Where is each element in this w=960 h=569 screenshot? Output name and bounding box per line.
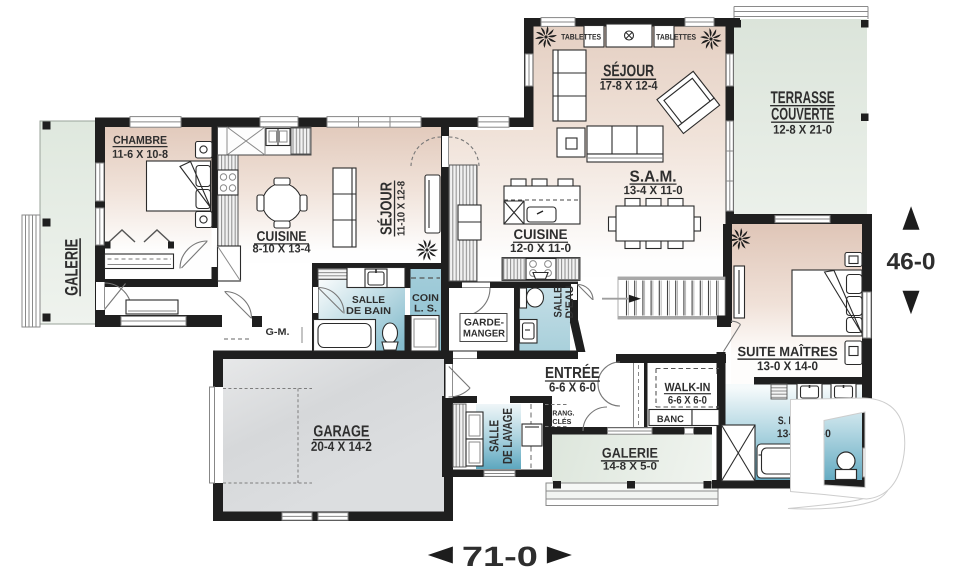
svg-text:SÉJOUR: SÉJOUR — [377, 182, 396, 235]
svg-text:12-0 X 11-0: 12-0 X 11-0 — [510, 241, 571, 255]
svg-text:BANC: BANC — [657, 414, 684, 425]
svg-text:11-6 X 10-8: 11-6 X 10-8 — [112, 149, 169, 161]
svg-text:SÉJOUR: SÉJOUR — [603, 61, 654, 80]
svg-text:71-0: 71-0 — [462, 541, 538, 569]
svg-text:TABLETTES: TABLETTES — [656, 33, 697, 42]
svg-text:MANGER: MANGER — [463, 328, 505, 339]
svg-text:GALERIE: GALERIE — [61, 239, 81, 296]
svg-text:L. S.: L. S. — [414, 303, 437, 314]
svg-text:17-8 X 12-4: 17-8 X 12-4 — [600, 79, 658, 93]
svg-text:13-4 X 11-0: 13-4 X 11-0 — [624, 183, 683, 197]
svg-text:GARAGE: GARAGE — [313, 423, 369, 440]
svg-text:D'EAU: D'EAU — [564, 286, 576, 319]
svg-text:CLÉS: CLÉS — [552, 417, 571, 426]
svg-text:6-6 X 6-0: 6-6 X 6-0 — [668, 395, 707, 407]
svg-text:TABLETTES: TABLETTES — [561, 33, 602, 42]
svg-text:46-0: 46-0 — [887, 248, 936, 274]
svg-text:GARDE-: GARDE- — [464, 317, 504, 328]
svg-text:COIN: COIN — [412, 293, 439, 304]
svg-text:GALERIE: GALERIE — [602, 445, 658, 461]
svg-text:12-8 X 21-0: 12-8 X 21-0 — [773, 123, 832, 137]
svg-text:WALK-IN: WALK-IN — [664, 380, 710, 394]
svg-text:DE LAVAGE: DE LAVAGE — [500, 408, 515, 464]
svg-text:20-4 X 14-2: 20-4 X 14-2 — [311, 439, 372, 454]
svg-text:13-0 X 14-0: 13-0 X 14-0 — [757, 359, 818, 373]
svg-text:COUVERTE: COUVERTE — [771, 105, 834, 124]
svg-text:CUISINE: CUISINE — [514, 226, 568, 242]
svg-text:11-10 X 12-8: 11-10 X 12-8 — [396, 181, 408, 236]
svg-text:SALLE: SALLE — [552, 287, 564, 318]
svg-text:14-8 X 5-0: 14-8 X 5-0 — [603, 461, 657, 473]
svg-text:CUISINE: CUISINE — [257, 228, 307, 244]
svg-text:SALLE: SALLE — [352, 295, 385, 306]
svg-text:DE BAIN: DE BAIN — [346, 306, 391, 317]
svg-text:CHAMBRE: CHAMBRE — [113, 135, 167, 147]
svg-text:6-6 X 6-0: 6-6 X 6-0 — [549, 380, 596, 395]
svg-text:G-M.: G-M. — [265, 327, 289, 338]
svg-text:8-10 X 13-4: 8-10 X 13-4 — [253, 243, 312, 255]
svg-text:SUITE MAÎTRES: SUITE MAÎTRES — [737, 343, 837, 359]
